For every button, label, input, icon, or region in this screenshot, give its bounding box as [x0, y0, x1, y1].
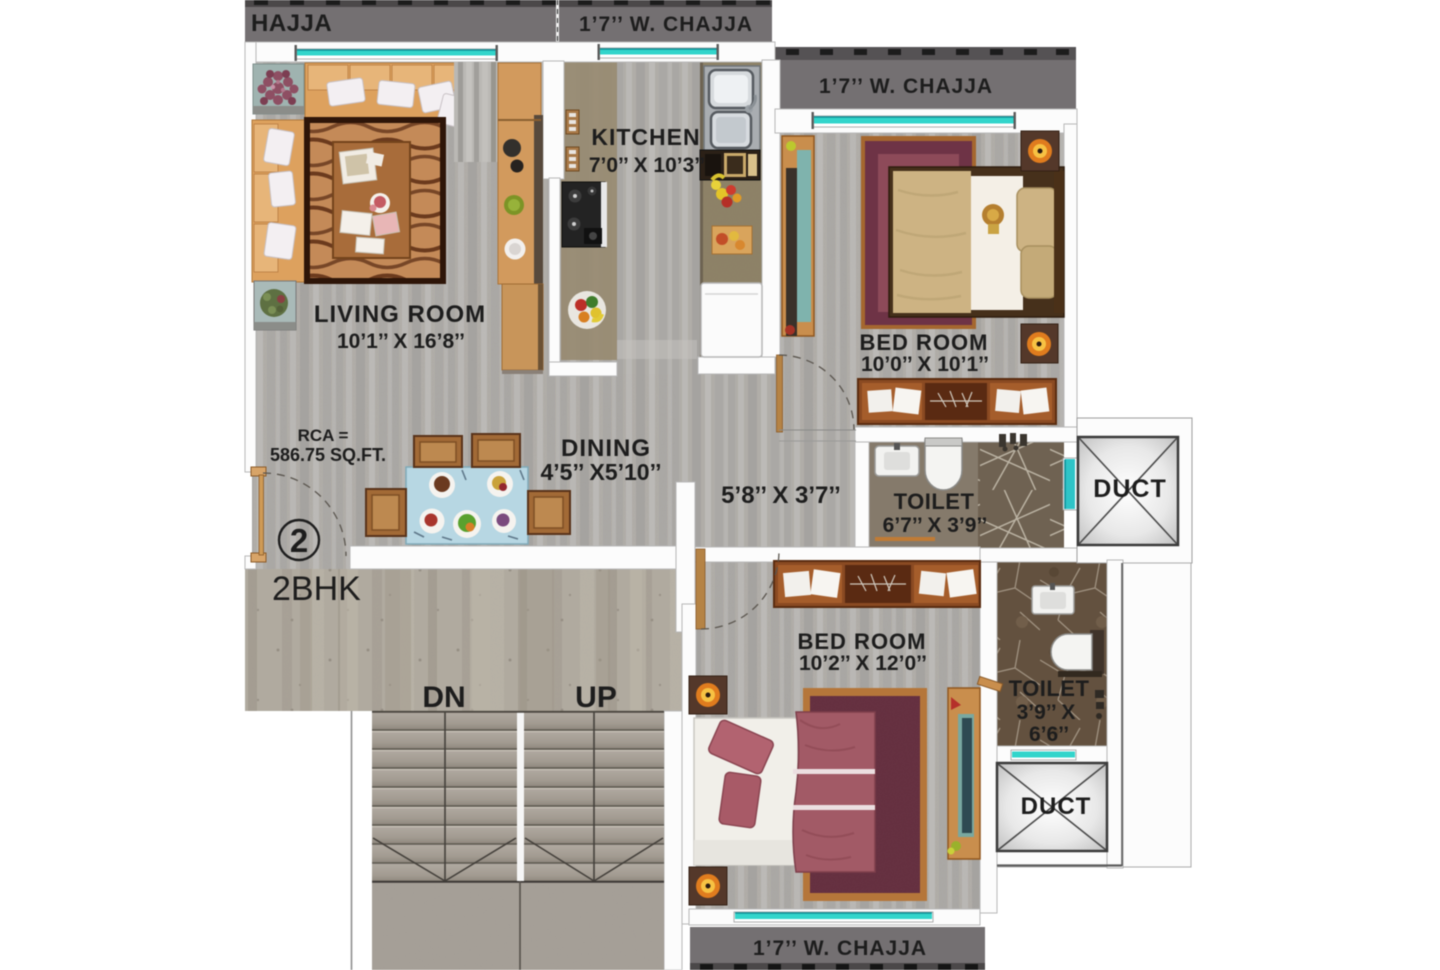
svg-text:LIVING ROOM: LIVING ROOM	[314, 301, 486, 328]
svg-text:10’2’’ X 12’0’’: 10’2’’ X 12’0’’	[799, 652, 927, 675]
svg-text:TOILET: TOILET	[894, 489, 975, 514]
svg-text:10’0’’ X 10’1’’: 10’0’’ X 10’1’’	[861, 353, 989, 376]
svg-text:DUCT: DUCT	[1021, 793, 1092, 820]
svg-text:3’9’’ X: 3’9’’ X	[1017, 701, 1076, 724]
svg-text:DINING: DINING	[561, 435, 651, 462]
svg-text:2BHK: 2BHK	[272, 570, 361, 608]
svg-text:HAJJA: HAJJA	[251, 10, 332, 37]
svg-text:KITCHEN: KITCHEN	[591, 124, 700, 150]
svg-text:2: 2	[290, 522, 308, 559]
svg-text:6’6’’: 6’6’’	[1029, 723, 1069, 746]
svg-text:7’0’’ X 10’3’’: 7’0’’ X 10’3’’	[589, 154, 705, 177]
svg-text:10’1’’ X 16’8’’: 10’1’’ X 16’8’’	[337, 330, 465, 353]
svg-text:5’8’’ X 3’7’’: 5’8’’ X 3’7’’	[721, 482, 841, 509]
svg-text:DN: DN	[422, 681, 465, 714]
svg-text:UP: UP	[575, 681, 617, 714]
svg-text:1’7’’ W. CHAJJA: 1’7’’ W. CHAJJA	[579, 13, 753, 36]
svg-text:6’7’’ X 3’9’’: 6’7’’ X 3’9’’	[883, 514, 988, 537]
svg-text:BED ROOM: BED ROOM	[798, 629, 927, 654]
svg-text:RCA =: RCA =	[298, 426, 349, 445]
svg-text:TOILET: TOILET	[1009, 676, 1090, 701]
svg-text:DUCT: DUCT	[1093, 475, 1166, 503]
svg-text:1’7’’ W. CHAJJA: 1’7’’ W. CHAJJA	[819, 75, 993, 98]
svg-text:BED ROOM: BED ROOM	[860, 330, 989, 355]
svg-text:586.75 SQ.FT.: 586.75 SQ.FT.	[270, 445, 386, 465]
svg-text:1’7’’ W. CHAJJA: 1’7’’ W. CHAJJA	[753, 937, 927, 960]
svg-text:4’5’’ X5’10’’: 4’5’’ X5’10’’	[540, 459, 661, 485]
